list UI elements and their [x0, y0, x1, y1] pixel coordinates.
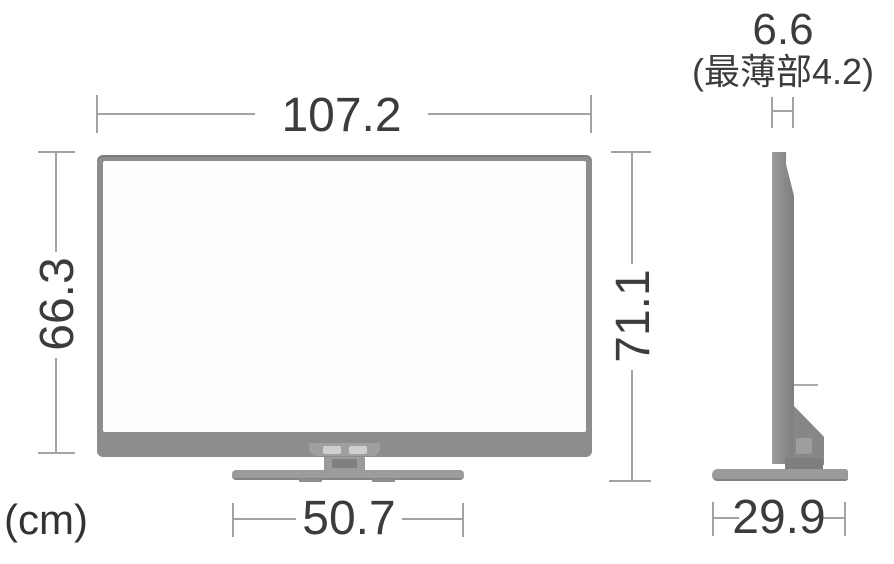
tv-stand-foot-left — [299, 479, 322, 482]
tv-stand-foot-right — [372, 479, 395, 482]
stand-width-label: 50.7 — [288, 495, 410, 543]
tv-side-stand-base — [712, 469, 848, 481]
tv-side-stand-mount — [793, 405, 824, 465]
stand-depth-dim-tick-right — [844, 502, 846, 536]
stand-width-dim-tick-left — [232, 503, 234, 537]
stand-width-dim-line-right — [402, 518, 462, 520]
side-thickness-label: 6.6 — [743, 8, 823, 52]
tv-stand-neck — [324, 457, 365, 470]
thickness-dim-tick-left — [771, 97, 773, 128]
tv-logo-ornament — [309, 443, 380, 456]
thinnest-part-note: (最薄部4.2) — [672, 52, 894, 92]
overall-height-dim-line-top — [631, 152, 633, 264]
stand-depth-dim-tick-left — [712, 502, 714, 536]
front-width-dim-line-left — [97, 113, 255, 115]
tv-screen — [103, 161, 586, 432]
overall-height-dim-line-bottom — [631, 370, 633, 481]
tv-side-stand-mount-detail — [796, 438, 812, 454]
front-width-label: 107.2 — [255, 92, 428, 140]
stand-width-dim-tick-right — [462, 503, 464, 537]
overall-height-dim-tick-bottom — [609, 480, 651, 482]
tv-dimension-diagram: 6.6 (最薄部4.2) 107.2 66.3 71.1 50.7 29.9 — [0, 0, 894, 564]
tv-stand-base — [232, 470, 464, 480]
tv-front-view — [97, 155, 592, 457]
thickness-dim-tick-right — [792, 97, 794, 128]
panel-height-dim-line-bottom — [55, 358, 57, 453]
overall-height-label: 71.1 — [610, 269, 658, 362]
stand-width-dim-line-left — [233, 518, 296, 520]
panel-height-dim-line-top — [55, 152, 57, 252]
unit-label: (cm) — [4, 496, 88, 544]
tv-side-view-panel — [772, 152, 794, 464]
tv-side-ledge-line — [794, 384, 818, 386]
thickness-dim-line — [771, 110, 794, 112]
front-width-dim-line-right — [428, 113, 591, 115]
stand-depth-label: 29.9 — [718, 494, 840, 542]
panel-height-label: 66.3 — [34, 257, 82, 350]
